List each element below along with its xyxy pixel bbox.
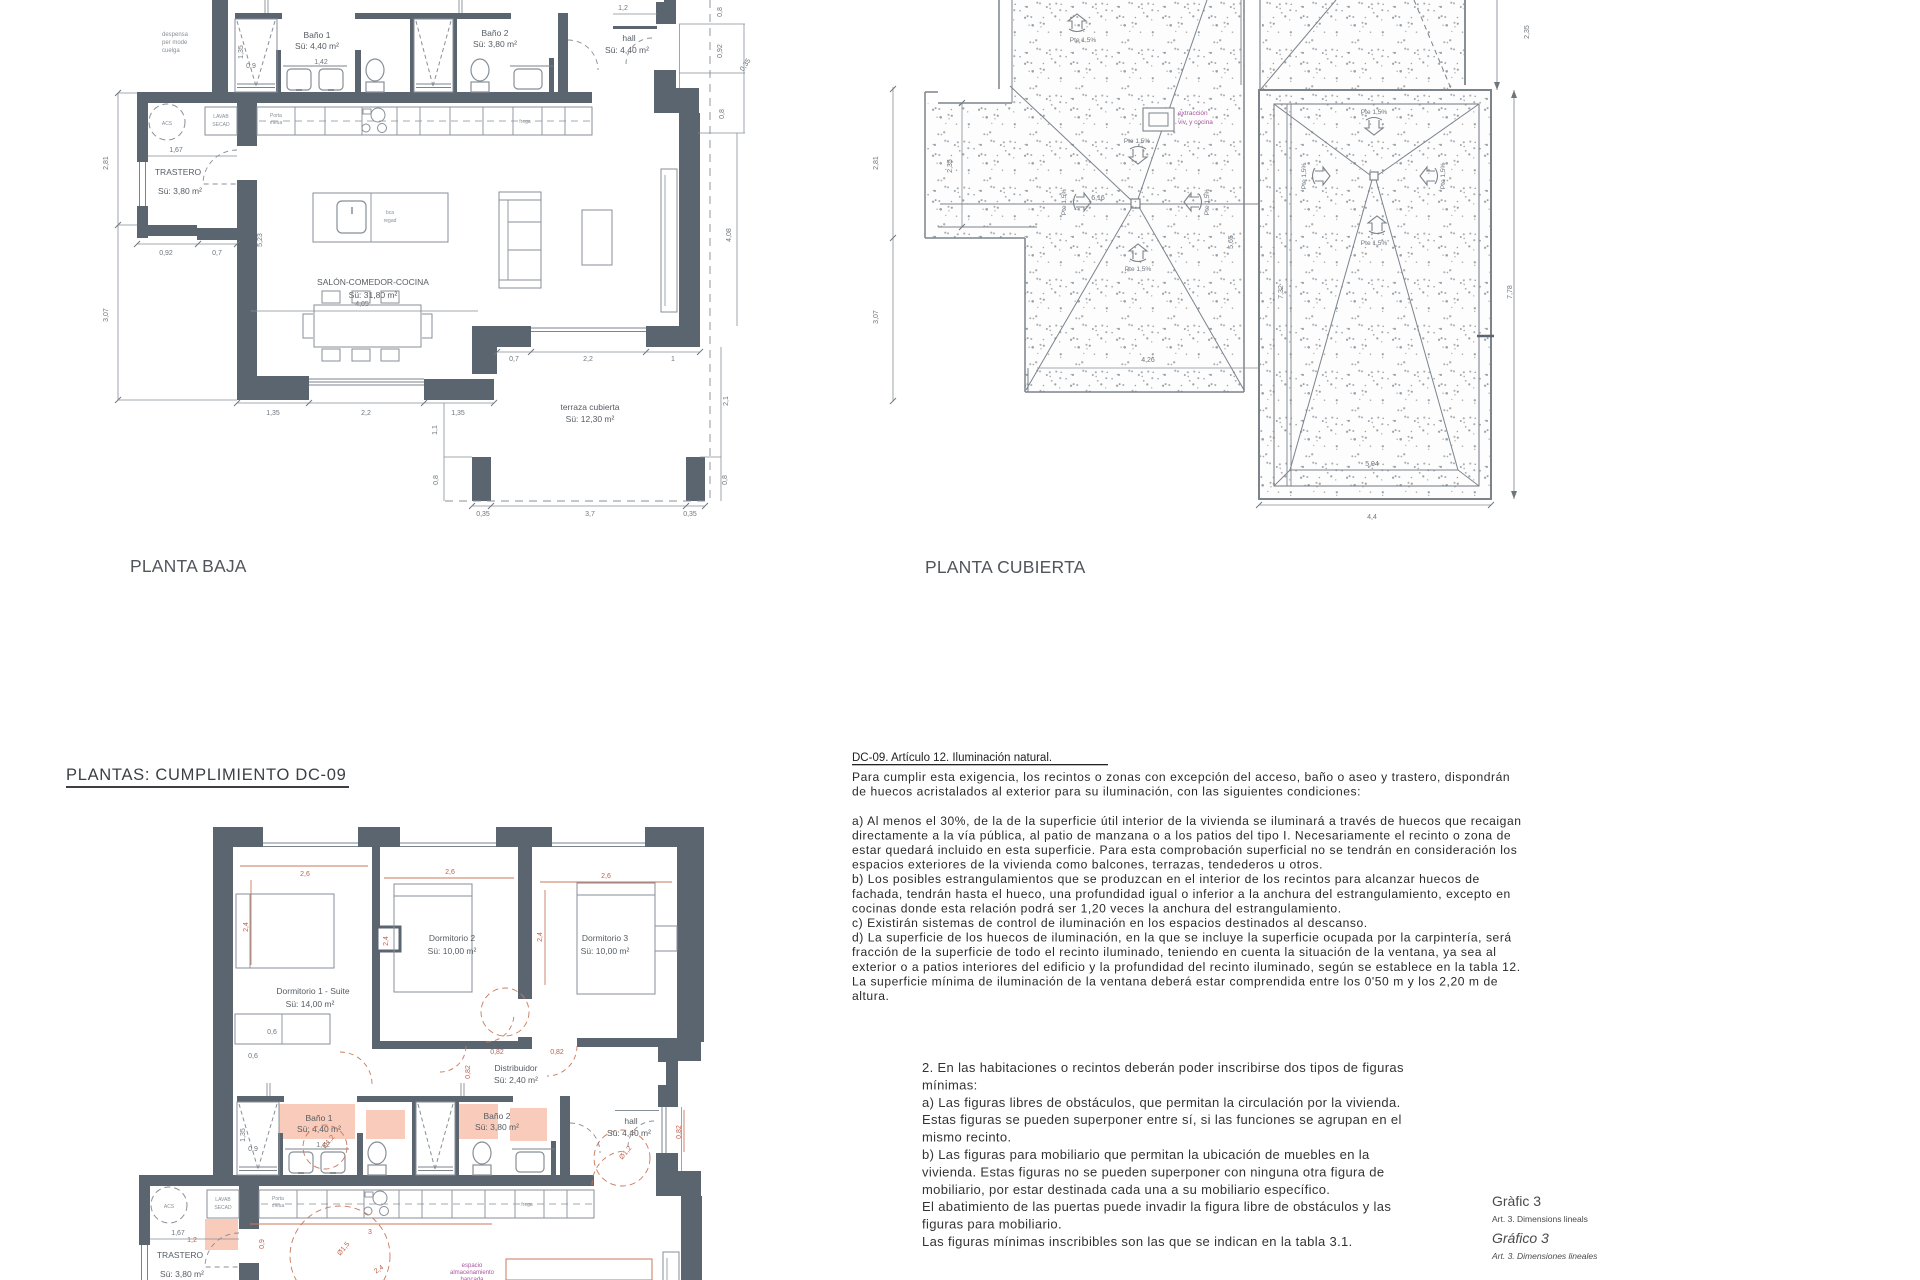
svg-text:PLANTA CUBIERTA: PLANTA CUBIERTA [925, 557, 1086, 577]
svg-text:espacios exteriores de la vivi: espacios exteriores de la vivienda como … [852, 858, 1323, 872]
svg-text:El abatimiento de las puertas: El abatimiento de las puertas puede inva… [922, 1199, 1391, 1214]
svg-text:fachada, tendrán hasta el huec: fachada, tendrán hasta el hueco, una pro… [852, 887, 1511, 901]
svg-text:2,81: 2,81 [103, 156, 110, 170]
svg-text:1,1: 1,1 [432, 425, 439, 435]
svg-text:terraza cubierta: terraza cubierta [560, 402, 619, 412]
svg-text:5,65: 5,65 [1228, 235, 1235, 249]
svg-text:a) Las figuras libres de obstá: a) Las figuras libres de obstáculos, que… [922, 1095, 1401, 1110]
svg-text:altura.: altura. [852, 989, 889, 1003]
svg-text:Sü: 4,40 m²: Sü: 4,40 m² [605, 45, 649, 55]
svg-text:frega: frega [519, 119, 531, 125]
svg-text:SECAD: SECAD [212, 122, 230, 128]
svg-text:Pte 1,5%: Pte 1,5% [1204, 189, 1211, 216]
svg-text:Para cumplir esta exigencia, l: Para cumplir esta exigencia, los recinto… [852, 770, 1510, 784]
svg-text:PLANTAS: CUMPLIMIENTO DC-09: PLANTAS: CUMPLIMIENTO DC-09 [66, 766, 347, 784]
svg-text:Sü: 2,40 m²: Sü: 2,40 m² [494, 1075, 538, 1085]
svg-text:2,6: 2,6 [300, 871, 310, 878]
svg-text:0,9: 0,9 [259, 1239, 266, 1249]
svg-text:per mode: per mode [162, 40, 188, 46]
svg-text:mismo recinto.: mismo recinto. [922, 1130, 1011, 1145]
svg-text:extracción: extracción [1178, 110, 1208, 117]
svg-text:Sü: 10,00 m²: Sü: 10,00 m² [581, 946, 630, 956]
svg-text:exterior o a patios interiores: exterior o a patios interiores del edifi… [852, 960, 1521, 974]
svg-text:Sü: 14,00 m²: Sü: 14,00 m² [286, 999, 335, 1009]
svg-text:Baño 2: Baño 2 [482, 28, 509, 38]
svg-text:Dormitorio 3: Dormitorio 3 [582, 933, 629, 943]
svg-text:Dormitorio 1 - Suite: Dormitorio 1 - Suite [276, 986, 349, 996]
svg-text:Pte 1,5%: Pte 1,5% [1301, 163, 1308, 190]
svg-text:0,82: 0,82 [676, 1125, 683, 1139]
svg-text:espacio: espacio [462, 1263, 483, 1269]
svg-text:0,8: 0,8 [717, 7, 724, 17]
svg-text:estar quedará incluido en esta: estar quedará incluido en esta superfici… [852, 843, 1517, 857]
svg-text:Estas figuras se pueden superp: Estas figuras se pueden superponer entre… [922, 1112, 1402, 1127]
svg-text:1: 1 [671, 356, 675, 363]
svg-text:0,8: 0,8 [722, 475, 729, 485]
svg-text:La superficie mínima de ilumin: La superficie mínima de iluminación de l… [852, 974, 1498, 988]
svg-text:0,82: 0,82 [490, 1049, 504, 1056]
svg-text:2,6: 2,6 [445, 869, 455, 876]
svg-text:meua: meua [270, 120, 283, 126]
svg-text:Sü: 3,80 m²: Sü: 3,80 m² [158, 186, 202, 196]
svg-text:0,9: 0,9 [246, 63, 256, 70]
svg-text:Pte 1,5%: Pte 1,5% [1061, 189, 1068, 216]
svg-text:Baño 1: Baño 1 [304, 30, 331, 40]
svg-text:1,42: 1,42 [314, 59, 328, 66]
svg-text:2,2: 2,2 [361, 410, 371, 417]
svg-text:vivienda. Estas figuras no se: vivienda. Estas figuras no se pueden sup… [922, 1164, 1384, 1179]
svg-text:c) Existirán sistemas de contr: c) Existirán sistemas de control de ilum… [852, 916, 1368, 930]
svg-text:hall: hall [622, 33, 635, 43]
svg-text:3: 3 [368, 1229, 372, 1236]
svg-text:0,92: 0,92 [159, 250, 173, 257]
svg-text:2,6: 2,6 [601, 873, 611, 880]
svg-text:0,8: 0,8 [433, 475, 440, 485]
svg-text:LAVAB: LAVAB [213, 114, 229, 120]
svg-text:directamente a la vía pública,: directamente a la vía pública, al patio … [852, 828, 1511, 842]
svg-text:0,82: 0,82 [465, 1065, 472, 1079]
svg-text:1,2: 1,2 [618, 5, 628, 12]
svg-text:3,07: 3,07 [103, 308, 110, 322]
svg-text:1,2: 1,2 [187, 1237, 197, 1244]
svg-text:a) Al menos el 30%, de la de l: a) Al menos el 30%, de la de la superfic… [852, 814, 1522, 828]
svg-text:despensa: despensa [162, 32, 189, 38]
svg-text:figuras para mobiliario.: figuras para mobiliario. [922, 1217, 1062, 1232]
svg-text:2,4: 2,4 [243, 922, 250, 932]
svg-text:Dormitorio 2: Dormitorio 2 [429, 933, 476, 943]
svg-text:1,35: 1,35 [238, 45, 245, 59]
svg-text:1,35: 1,35 [266, 410, 280, 417]
svg-text:2,2: 2,2 [583, 356, 593, 363]
svg-text:6,16: 6,16 [1091, 195, 1105, 202]
svg-text:0,35: 0,35 [683, 511, 697, 518]
svg-text:fracción de la superficie de t: fracción de la superficie de todo el rec… [852, 945, 1497, 959]
svg-text:4,08: 4,08 [726, 228, 733, 242]
svg-text:Pte 1,5%: Pte 1,5% [1125, 266, 1152, 273]
svg-text:0,82: 0,82 [550, 1049, 564, 1056]
svg-text:7,78: 7,78 [1507, 285, 1514, 299]
svg-text:Pte 1,5%: Pte 1,5% [1124, 138, 1151, 145]
svg-text:b) Los posibles estrangulamien: b) Los posibles estrangulamientos que se… [852, 872, 1480, 886]
svg-text:5,94: 5,94 [1365, 461, 1379, 468]
svg-text:0,35: 0,35 [476, 511, 490, 518]
svg-text:4,26: 4,26 [1141, 357, 1155, 364]
svg-text:7,32: 7,32 [1278, 285, 1285, 299]
svg-text:Pte 1,5%: Pte 1,5% [1361, 109, 1388, 116]
svg-text:2. En las habitaciones o recin: 2. En las habitaciones o recintos deberá… [922, 1060, 1404, 1075]
svg-text:5,23: 5,23 [257, 233, 264, 247]
svg-text:2,81: 2,81 [873, 156, 880, 170]
svg-text:3,07: 3,07 [873, 310, 880, 324]
svg-text:Sü: 12,30 m²: Sü: 12,30 m² [566, 414, 615, 424]
svg-text:cocinas donde esta relación po: cocinas donde esta relación podrá ser 1,… [852, 901, 1342, 915]
svg-text:0,6: 0,6 [267, 1029, 277, 1036]
svg-text:Gráfico 3: Gráfico 3 [1492, 1230, 1549, 1246]
svg-text:2,4: 2,4 [537, 932, 544, 942]
svg-text:0,6: 0,6 [248, 1053, 258, 1060]
svg-text:3,7: 3,7 [585, 511, 595, 518]
svg-text:viv. y cocina: viv. y cocina [1178, 119, 1213, 126]
svg-text:mínimas:: mínimas: [922, 1077, 978, 1092]
svg-text:1,35: 1,35 [451, 410, 465, 417]
svg-text:4,05: 4,05 [355, 301, 369, 308]
svg-text:TRASTERO: TRASTERO [155, 167, 202, 177]
svg-text:0,7: 0,7 [212, 250, 222, 257]
svg-text:Gràfic 3: Gràfic 3 [1492, 1193, 1541, 1209]
svg-text:cuelga: cuelga [162, 48, 180, 54]
svg-text:ACS: ACS [162, 121, 173, 127]
svg-text:regad: regad [384, 218, 397, 224]
svg-text:4,4: 4,4 [1367, 514, 1377, 521]
svg-text:0,8: 0,8 [719, 109, 726, 119]
svg-text:SALÓN-COMEDOR-COCINA: SALÓN-COMEDOR-COCINA [317, 277, 429, 287]
svg-text:Sü: 3,80 m²: Sü: 3,80 m² [473, 39, 517, 49]
svg-text:Art. 3. Dimensions lineals: Art. 3. Dimensions lineals [1492, 1214, 1588, 1224]
svg-text:Pte 1,5%: Pte 1,5% [1070, 37, 1097, 44]
svg-text:d) La superficie de los huecos: d) La superficie de los huecos de ilumin… [852, 931, 1512, 945]
svg-text:2,1: 2,1 [723, 396, 730, 406]
svg-text:2,35: 2,35 [947, 159, 954, 173]
svg-text:mobiliario, por estar destinad: mobiliario, por estar destinada cada una… [922, 1182, 1330, 1197]
svg-text:Las figuras mínimas inscribibl: Las figuras mínimas inscribibles son las… [922, 1234, 1353, 1249]
svg-text:Pte 1,5%: Pte 1,5% [1361, 240, 1388, 247]
svg-text:Sü: 10,00 m²: Sü: 10,00 m² [428, 946, 477, 956]
svg-text:bca: bca [386, 210, 394, 216]
svg-text:DC-09. Artículo 12. Iluminació: DC-09. Artículo 12. Iluminación natural. [852, 752, 1052, 764]
svg-text:Porta: Porta [270, 113, 282, 119]
svg-text:Distribuidor: Distribuidor [495, 1063, 538, 1073]
svg-text:b) Las figuras para mobiliario: b) Las figuras para mobiliario que permi… [922, 1147, 1370, 1162]
svg-text:Sü: 4,40 m²: Sü: 4,40 m² [295, 41, 339, 51]
svg-text:2,35: 2,35 [1524, 25, 1531, 39]
svg-text:0,92: 0,92 [717, 44, 724, 58]
svg-text:2,4: 2,4 [383, 936, 390, 946]
svg-text:1,67: 1,67 [169, 147, 183, 154]
svg-text:de huecos acristalados al exte: de huecos acristalados al exterior para … [852, 785, 1361, 799]
svg-text:0,7: 0,7 [509, 356, 519, 363]
svg-text:PLANTA BAJA: PLANTA BAJA [130, 556, 247, 576]
svg-text:Pte 1,5%: Pte 1,5% [1440, 163, 1447, 190]
svg-text:almacenamiento: almacenamiento [450, 1270, 495, 1276]
svg-text:Art. 3. Dimensiones lineales: Art. 3. Dimensiones lineales [1491, 1251, 1598, 1261]
